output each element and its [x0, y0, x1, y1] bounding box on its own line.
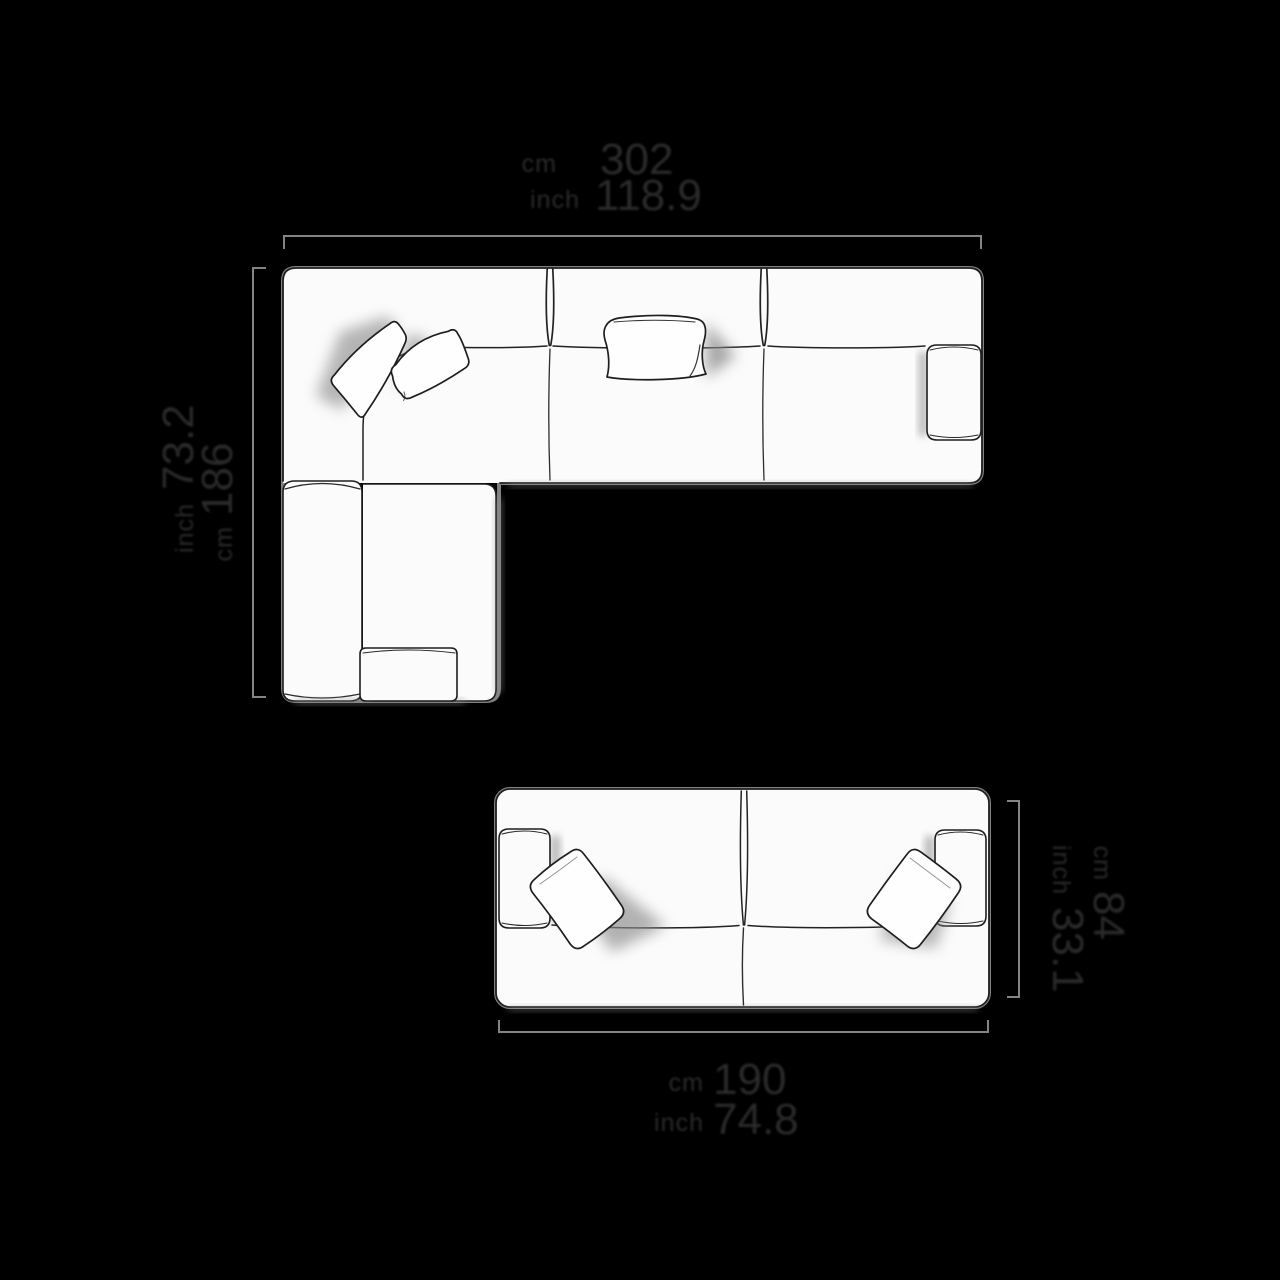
svg-text:73.2: 73.2 — [154, 404, 203, 490]
svg-text:inch: inch — [530, 186, 580, 214]
svg-text:cm: cm — [1088, 846, 1116, 881]
svg-text:74.8: 74.8 — [713, 1095, 799, 1144]
svg-text:118.9: 118.9 — [595, 171, 702, 220]
svg-text:inch: inch — [171, 503, 199, 553]
svg-text:cm: cm — [210, 526, 238, 561]
svg-text:inch: inch — [654, 1109, 704, 1137]
svg-text:33.1: 33.1 — [1043, 907, 1092, 993]
svg-text:cm: cm — [669, 1069, 704, 1097]
svg-text:cm: cm — [522, 150, 557, 178]
svg-text:inch: inch — [1047, 845, 1075, 895]
